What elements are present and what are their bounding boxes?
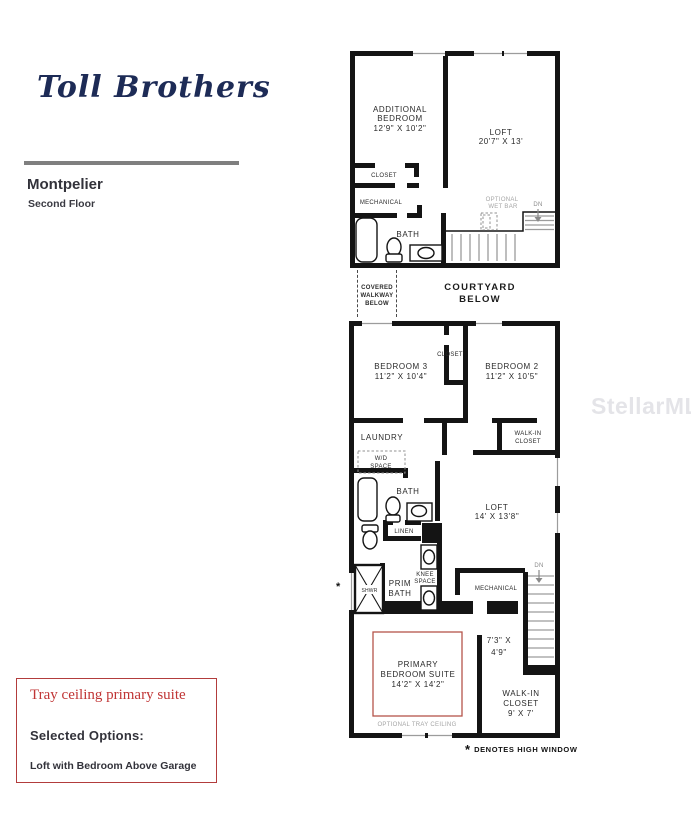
stellar-mls-watermark: StellarMLS <box>591 393 691 420</box>
upper-mechanical-label: MECHANICAL <box>360 200 403 206</box>
bedroom3-label: BEDROOM 3 <box>374 362 427 371</box>
laundry-label: LAUNDRY <box>361 433 403 442</box>
selected-option-item: Loft with Bedroom Above Garage <box>30 760 203 772</box>
covered-walkway-line-2: WALKWAY <box>358 292 396 300</box>
primary-suite-label-1: PRIMARY <box>398 660 439 669</box>
shwr-label: SHWR <box>361 588 377 594</box>
walkin-top-label-1: WALK-IN <box>515 431 542 437</box>
wet-bar-label-1: OPTIONAL <box>486 197 519 203</box>
toll-brothers-logo: Toll Brothers <box>37 70 271 105</box>
lower-loft-dims: 14' X 13'8" <box>475 512 520 521</box>
stair-hall-dims-2: 4'9" <box>491 648 507 657</box>
wet-bar-label-2: WET BAR <box>488 204 518 210</box>
courtyard-below: COURTYARD BELOW <box>426 282 534 306</box>
knee-space-label-2: SPACE <box>414 579 435 585</box>
walkin-bottom-label-2: CLOSET <box>503 699 539 708</box>
walkin-top-label-2: CLOSET <box>515 439 541 445</box>
courtyard-line-2: BELOW <box>426 294 534 306</box>
upper-loft-dims: 20'7" X 13' <box>479 137 524 146</box>
upper-closet-label: CLOSET <box>371 173 397 179</box>
covered-walkway-line-1: COVERED <box>358 284 396 292</box>
upper-loft-label: LOFT <box>490 128 513 137</box>
covered-walkway-line-3: BELOW <box>358 300 396 308</box>
high-window-footnote: *DENOTES HIGH WINDOW <box>465 739 578 757</box>
upper-plan-walls <box>350 51 560 268</box>
divider-rule <box>24 161 239 165</box>
optional-wet-bar-outline <box>481 213 497 230</box>
selected-options-box: Tray ceiling primary suite Selected Opti… <box>16 678 217 783</box>
linen-label: LINEN <box>394 529 413 535</box>
optional-tray-ceiling-label: OPTIONAL TRAY CEILING <box>377 722 456 728</box>
selected-options-heading: Selected Options: <box>30 728 203 743</box>
lower-loft-label: LOFT <box>486 503 509 512</box>
upper-bath-label: BATH <box>396 230 419 239</box>
bedroom2-label: BEDROOM 2 <box>485 362 538 371</box>
bathtub-icon <box>358 478 377 521</box>
floor-label: Second Floor <box>28 198 95 210</box>
lower-mechanical-label: MECHANICAL <box>475 586 518 592</box>
wd-space-label-2: SPACE <box>370 464 391 470</box>
option-highlight: Tray ceiling primary suite <box>30 687 203 704</box>
walkin-bottom-label-1: WALK-IN <box>502 689 539 698</box>
upper-bath-fixtures <box>356 218 442 262</box>
upper-floor-plan: ADDITIONAL BEDROOM 12'9" X 10'2" LOFT 20… <box>348 48 562 270</box>
bathtub-icon <box>356 218 377 262</box>
floor-plan-page: Toll Brothers Montpelier Second Floor St… <box>0 0 691 814</box>
upper-dn-label: DN <box>533 202 542 208</box>
lower-dn-label: DN <box>534 563 543 569</box>
bedrooms-closet-label: CLOSET <box>437 352 463 358</box>
knee-space-label-1: KNEE <box>416 572 434 578</box>
high-window-asterisk: * <box>336 581 340 593</box>
covered-walkway-below: COVERED WALKWAY BELOW <box>357 270 397 317</box>
footnote-text: DENOTES HIGH WINDOW <box>474 745 577 754</box>
walkin-bottom-dims: 9' X 7' <box>508 709 534 718</box>
footnote-asterisk: * <box>465 742 470 757</box>
primary-suite-dims: 14'2" X 14'2" <box>391 680 444 689</box>
lower-plan-stairs <box>528 576 554 657</box>
toilet-icon <box>386 497 400 515</box>
prim-bath-label-2: BATH <box>388 589 411 598</box>
lower-floor-plan: BEDROOM 3 11'2" X 10'4" CLOSET BEDROOM 2… <box>347 319 563 743</box>
primary-suite-label-2: BEDROOM SUITE <box>381 670 456 679</box>
additional-bedroom-label-2: BEDROOM <box>377 114 423 123</box>
bedroom3-dims: 11'2" X 10'4" <box>375 372 427 381</box>
additional-bedroom-dims: 12'9" X 10'2" <box>373 124 426 133</box>
prim-bath-label-1: PRIM <box>389 579 411 588</box>
stair-hall-dims-1: 7'3" X <box>487 636 511 645</box>
plan-name: Montpelier <box>27 176 103 193</box>
bedroom2-dims: 11'2" X 10'5" <box>486 372 538 381</box>
additional-bedroom-label: ADDITIONAL <box>373 105 427 114</box>
courtyard-line-1: COURTYARD <box>426 282 534 294</box>
lower-bath-label: BATH <box>396 487 419 496</box>
wd-space-label-1: W/D <box>375 456 388 462</box>
